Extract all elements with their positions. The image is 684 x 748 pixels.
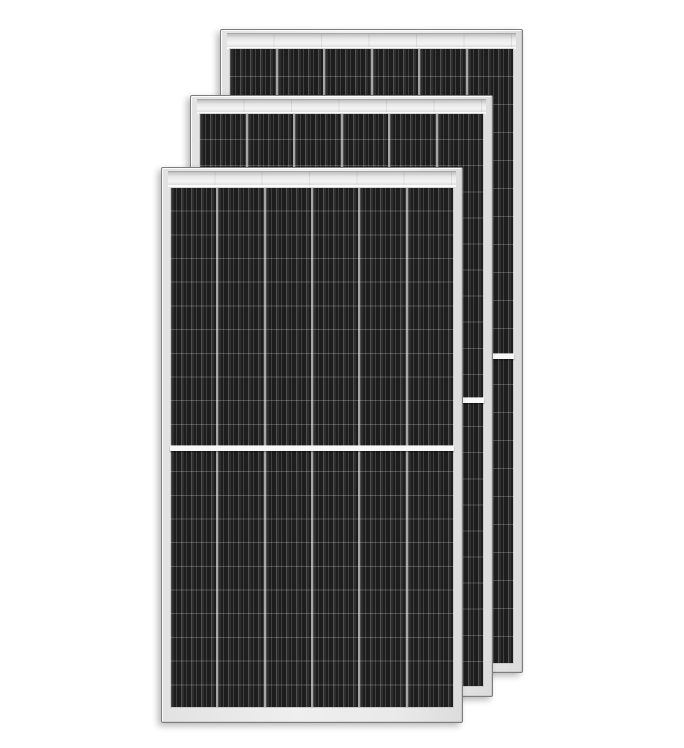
cell-column	[218, 188, 263, 707]
cell-column	[266, 188, 311, 707]
panel-top-rail	[197, 99, 486, 112]
panel-cell-grid	[170, 187, 454, 708]
cell-column	[171, 188, 216, 707]
product-image-solar-panels	[0, 0, 684, 748]
panel-top-rail	[168, 171, 456, 185]
cell-column	[408, 188, 453, 707]
panel-top-rail	[227, 33, 516, 47]
cell-column	[313, 188, 358, 707]
solar-panel-front	[161, 167, 463, 723]
cell-column	[360, 188, 405, 707]
